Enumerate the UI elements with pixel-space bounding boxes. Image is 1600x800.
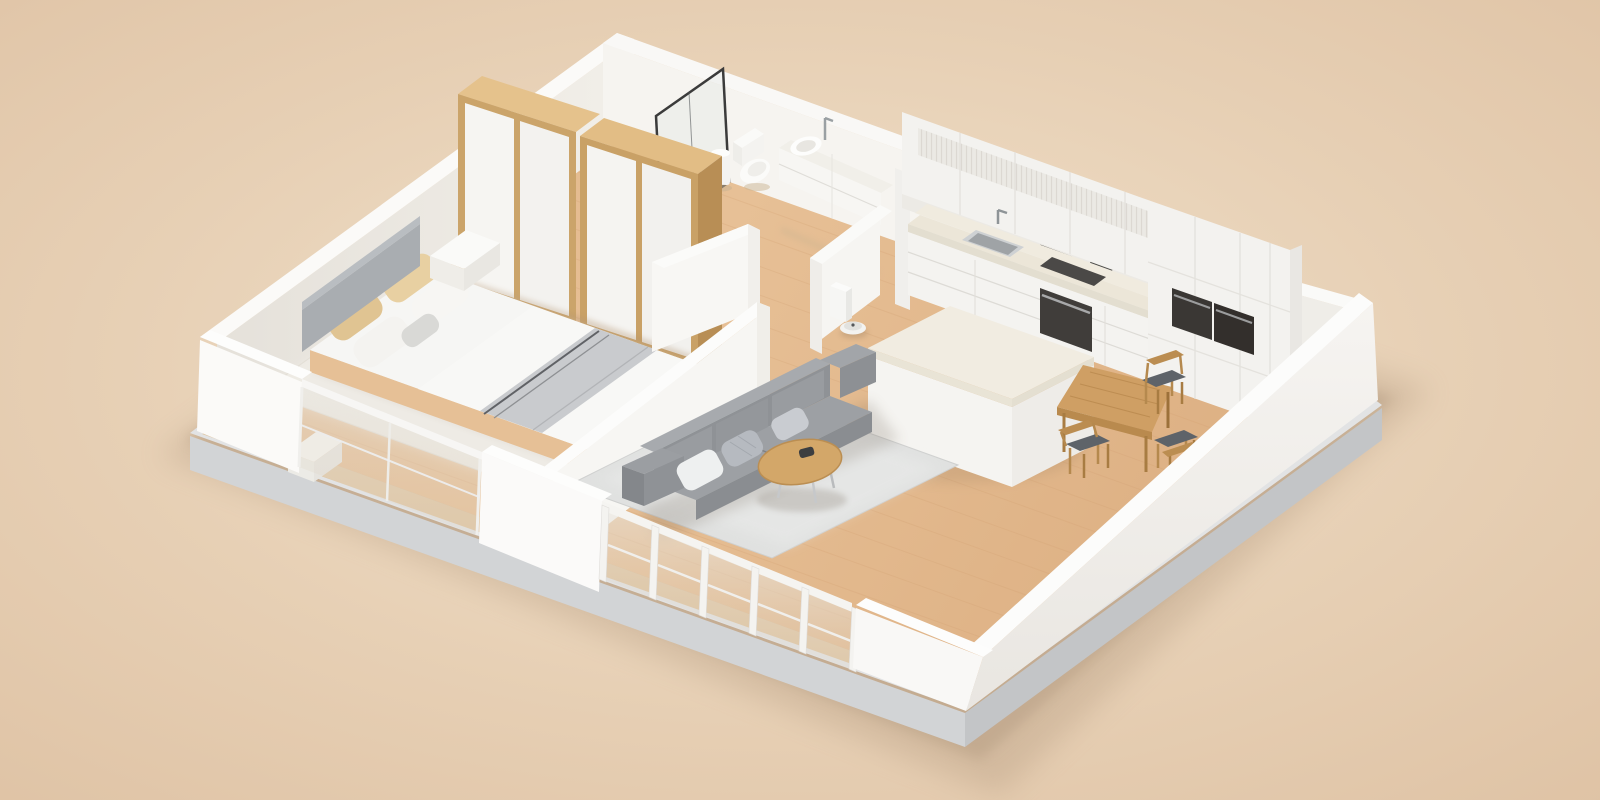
vacuum-sensor — [851, 323, 854, 326]
vacuum-dock — [830, 286, 846, 322]
wall-kitchen-divider-end — [810, 258, 822, 354]
coffee-table-shadow — [757, 488, 847, 512]
wardrobe-unit2-door-left — [587, 145, 636, 340]
floorplan-canvas — [0, 0, 1600, 800]
apartment-floorplan-render — [0, 0, 1600, 800]
wardrobe-unit1-door-right — [520, 121, 569, 316]
